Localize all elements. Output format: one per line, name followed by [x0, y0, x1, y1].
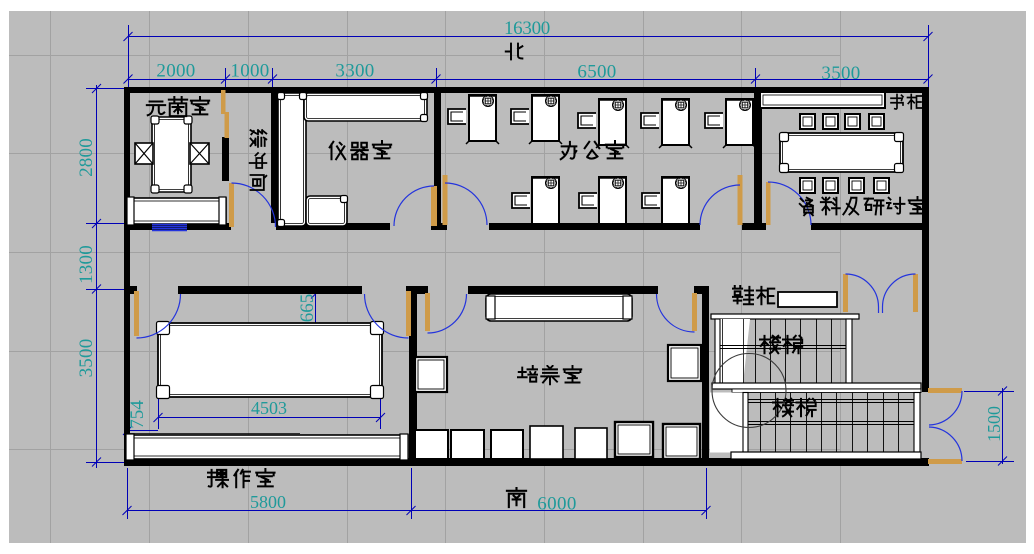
- svg-text:16300: 16300: [504, 18, 550, 39]
- svg-text:5800: 5800: [250, 492, 286, 512]
- svg-text:3300: 3300: [335, 61, 374, 82]
- svg-text:754: 754: [127, 400, 148, 429]
- svg-text:3500: 3500: [821, 63, 860, 84]
- svg-text:1300: 1300: [76, 245, 97, 284]
- svg-text:2800: 2800: [76, 138, 97, 177]
- svg-text:3500: 3500: [76, 339, 97, 378]
- svg-text:1500: 1500: [984, 406, 1004, 442]
- svg-text:6000: 6000: [537, 494, 577, 515]
- svg-text:665: 665: [297, 294, 318, 323]
- svg-text:2000: 2000: [156, 61, 195, 82]
- svg-text:6500: 6500: [577, 62, 616, 83]
- svg-text:1000: 1000: [230, 61, 269, 82]
- svg-text:4503: 4503: [251, 398, 287, 418]
